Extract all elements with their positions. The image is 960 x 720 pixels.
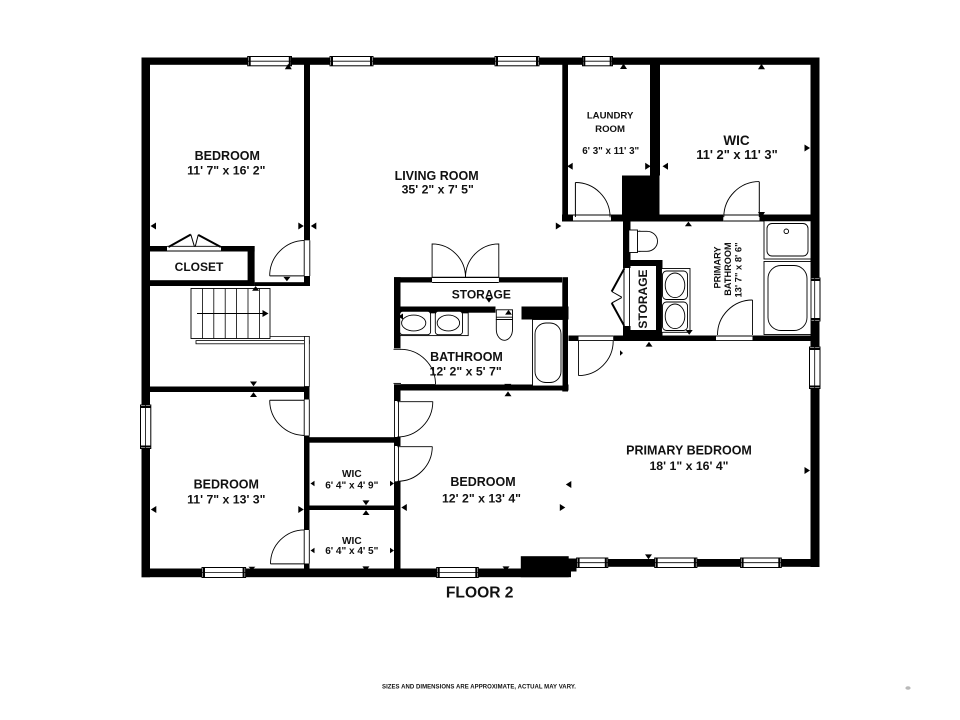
svg-text:STORAGE: STORAGE [452, 288, 511, 302]
svg-text:11' 2" x 11' 3": 11' 2" x 11' 3" [696, 147, 777, 162]
svg-text:LIVING ROOM: LIVING ROOM [395, 169, 479, 183]
svg-text:STORAGE: STORAGE [636, 269, 650, 328]
svg-text:6' 4" x 4' 5": 6' 4" x 4' 5" [325, 546, 378, 557]
svg-text:BEDROOM: BEDROOM [450, 475, 515, 489]
svg-text:ROOM: ROOM [595, 124, 625, 135]
svg-text:6' 3" x 11' 3": 6' 3" x 11' 3" [582, 146, 639, 157]
svg-text:6' 4" x 4' 9": 6' 4" x 4' 9" [325, 480, 378, 491]
svg-text:11' 7" x 16' 2": 11' 7" x 16' 2" [187, 164, 266, 178]
svg-text:WIC: WIC [342, 469, 362, 480]
svg-text:BATHROOM: BATHROOM [430, 350, 503, 364]
svg-text:11' 7" x 13' 3": 11' 7" x 13' 3" [187, 492, 266, 506]
svg-text:18' 1" x 16' 4": 18' 1" x 16' 4" [649, 459, 728, 473]
svg-text:SIZES AND DIMENSIONS ARE APPRO: SIZES AND DIMENSIONS ARE APPROXIMATE, AC… [382, 685, 576, 691]
svg-text:WIC: WIC [723, 133, 749, 148]
svg-text:35' 2" x 7' 5": 35' 2" x 7' 5" [402, 183, 474, 197]
svg-text:BEDROOM: BEDROOM [194, 478, 259, 492]
svg-text:12' 2" x 5' 7": 12' 2" x 5' 7" [429, 365, 501, 379]
svg-text:PRIMARY BEDROOM: PRIMARY BEDROOM [626, 444, 752, 458]
svg-text:PRIMARY: PRIMARY [713, 246, 723, 288]
svg-text:13' 7" x 8' 6": 13' 7" x 8' 6" [733, 242, 744, 297]
svg-text:12' 2" x 13' 4": 12' 2" x 13' 4" [442, 491, 521, 505]
svg-text:BATHROOM: BATHROOM [723, 242, 733, 296]
svg-text:FLOOR 2: FLOOR 2 [446, 584, 514, 601]
svg-text:BEDROOM: BEDROOM [195, 149, 260, 163]
svg-text:CLOSET: CLOSET [175, 260, 224, 274]
svg-text:LAUNDRY: LAUNDRY [587, 111, 634, 122]
